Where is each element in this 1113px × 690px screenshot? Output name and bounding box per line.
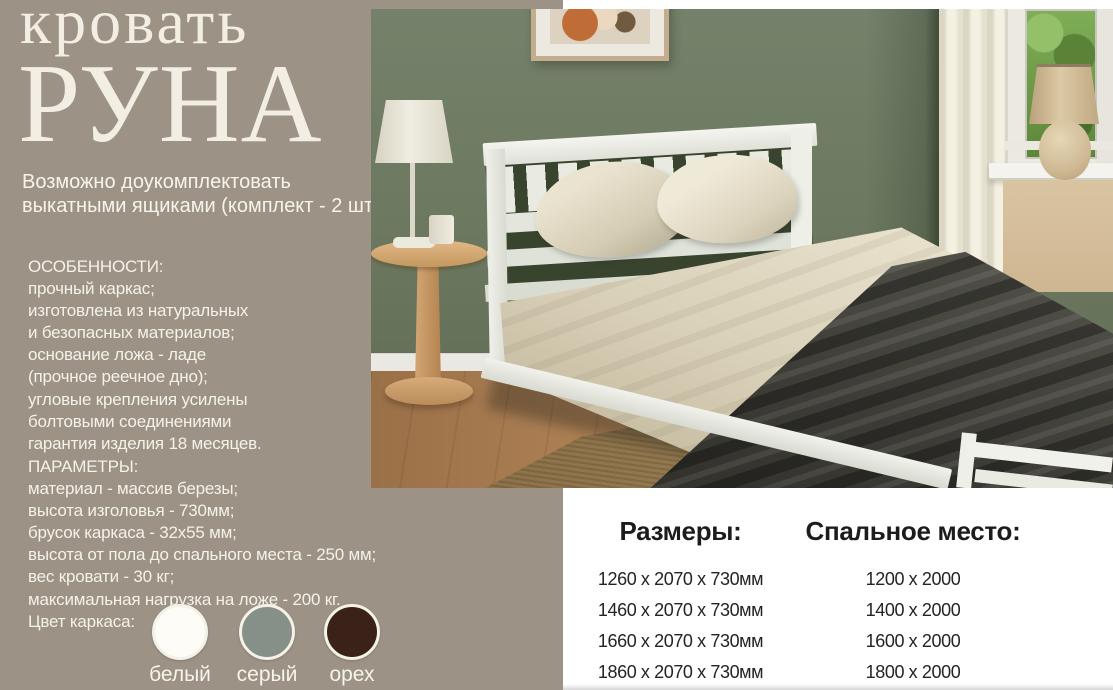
wall-picture-frame bbox=[531, 9, 669, 61]
color-option-white: белый bbox=[134, 604, 226, 687]
dimensions-column: Размеры: 1260 х 2070 х 730мм 1460 х 2070… bbox=[568, 488, 793, 690]
sleeping-area-row: 1200 х 2000 bbox=[798, 564, 1028, 595]
dimension-row: 1460 х 2070 х 730мм bbox=[568, 595, 793, 626]
table-lamp-stem bbox=[410, 163, 415, 243]
product-photo bbox=[371, 9, 1113, 488]
feature-line: и безопасных материалов; bbox=[28, 322, 262, 344]
sleeping-area-row: 1600 х 2000 bbox=[798, 626, 1028, 657]
dimension-row: 1660 х 2070 х 730мм bbox=[568, 626, 793, 657]
dimension-row: 1260 х 2070 х 730мм bbox=[568, 564, 793, 595]
dimensions-panel: Размеры: 1260 х 2070 х 730мм 1460 х 2070… bbox=[563, 488, 1113, 690]
sleeping-area-header: Спальное место: bbox=[798, 516, 1028, 547]
feature-line: гарантия изделия 18 месяцев. bbox=[28, 433, 262, 455]
color-swatch-white bbox=[152, 604, 208, 660]
candle-cup bbox=[429, 215, 454, 244]
color-swatch-label: орех bbox=[329, 663, 374, 687]
features-heading: ОСОБЕННОСТИ: bbox=[28, 256, 262, 278]
color-swatch-label: серый bbox=[237, 663, 298, 687]
table-lamp-shade bbox=[375, 100, 453, 163]
parameter-line: материал - массив березы; bbox=[28, 478, 376, 500]
color-option-walnut: орех bbox=[306, 604, 398, 687]
parameter-line: высота изголовья - 730мм; bbox=[28, 500, 376, 522]
sleeping-area-row: 1400 х 2000 bbox=[798, 595, 1028, 626]
feature-line: изготовлена из натуральных bbox=[28, 300, 262, 322]
color-swatch-walnut bbox=[324, 604, 380, 660]
windowsill-lamp-shade bbox=[1029, 64, 1099, 124]
side-table-base bbox=[385, 377, 473, 405]
sleeping-area-column: Спальное место: 1200 х 2000 1400 х 2000 … bbox=[798, 488, 1028, 690]
feature-line: основание ложа - ладе bbox=[28, 344, 262, 366]
dimensions-rows: 1260 х 2070 х 730мм 1460 х 2070 х 730мм … bbox=[568, 564, 793, 688]
feature-line: болтовыми соединениями bbox=[28, 411, 262, 433]
parameter-line: высота от пола до спального места - 250 … bbox=[28, 544, 376, 566]
windowsill-lamp-base bbox=[1039, 120, 1091, 180]
parameters-heading: ПАРАМЕТРЫ: bbox=[28, 456, 376, 478]
features-block: ОСОБЕННОСТИ: прочный каркас; изготовлена… bbox=[28, 256, 262, 455]
color-option-gray: серый bbox=[221, 604, 313, 687]
feature-line: прочный каркас; bbox=[28, 278, 262, 300]
wall-below-sill bbox=[1003, 180, 1113, 292]
dimensions-header: Размеры: bbox=[568, 516, 793, 547]
sleeping-area-rows: 1200 х 2000 1400 х 2000 1600 х 2000 1800… bbox=[798, 564, 1028, 688]
subtitle-line-2: выкатными ящиками (комплект - 2 шт) bbox=[22, 194, 380, 218]
subtitle: Возможно доукомплектовать выкатными ящик… bbox=[22, 170, 380, 218]
subtitle-line-1: Возможно доукомплектовать bbox=[22, 170, 380, 194]
bottom-edge-shadow bbox=[563, 684, 1113, 690]
product-name-title: РУНА bbox=[18, 48, 323, 160]
product-sheet: кровать РУНА Возможно доукомплектовать в… bbox=[0, 0, 1113, 690]
feature-line: (прочное реечное дно); bbox=[28, 366, 262, 388]
parameter-line: вес кровати - 30 кг; bbox=[28, 566, 376, 588]
wall-picture-art bbox=[550, 9, 650, 44]
color-swatch-gray bbox=[239, 604, 295, 660]
feature-line: угловые крепления усилены bbox=[28, 389, 262, 411]
side-table-pedestal bbox=[415, 261, 441, 387]
color-swatch-label: белый bbox=[149, 663, 211, 687]
parameter-line: брусок каркаса - 32х55 мм; bbox=[28, 522, 376, 544]
